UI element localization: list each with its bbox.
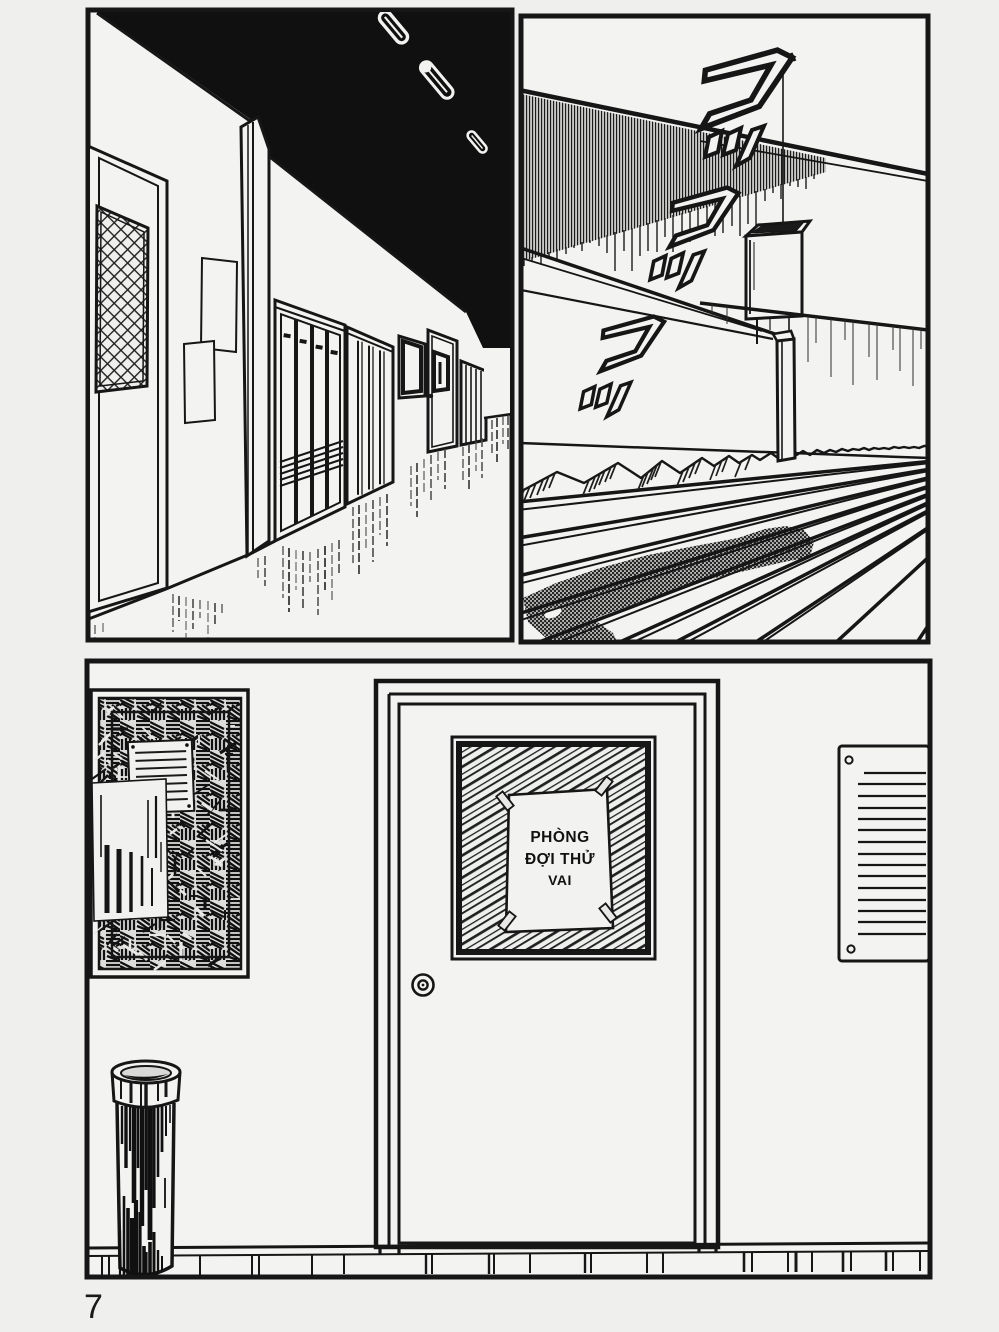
- svg-text:VAI: VAI: [548, 872, 572, 888]
- svg-text:PHÒNG: PHÒNG: [530, 828, 589, 846]
- svg-text:7: 7: [84, 1288, 103, 1326]
- svg-text:ĐỢI THỬ: ĐỢI THỬ: [525, 850, 595, 868]
